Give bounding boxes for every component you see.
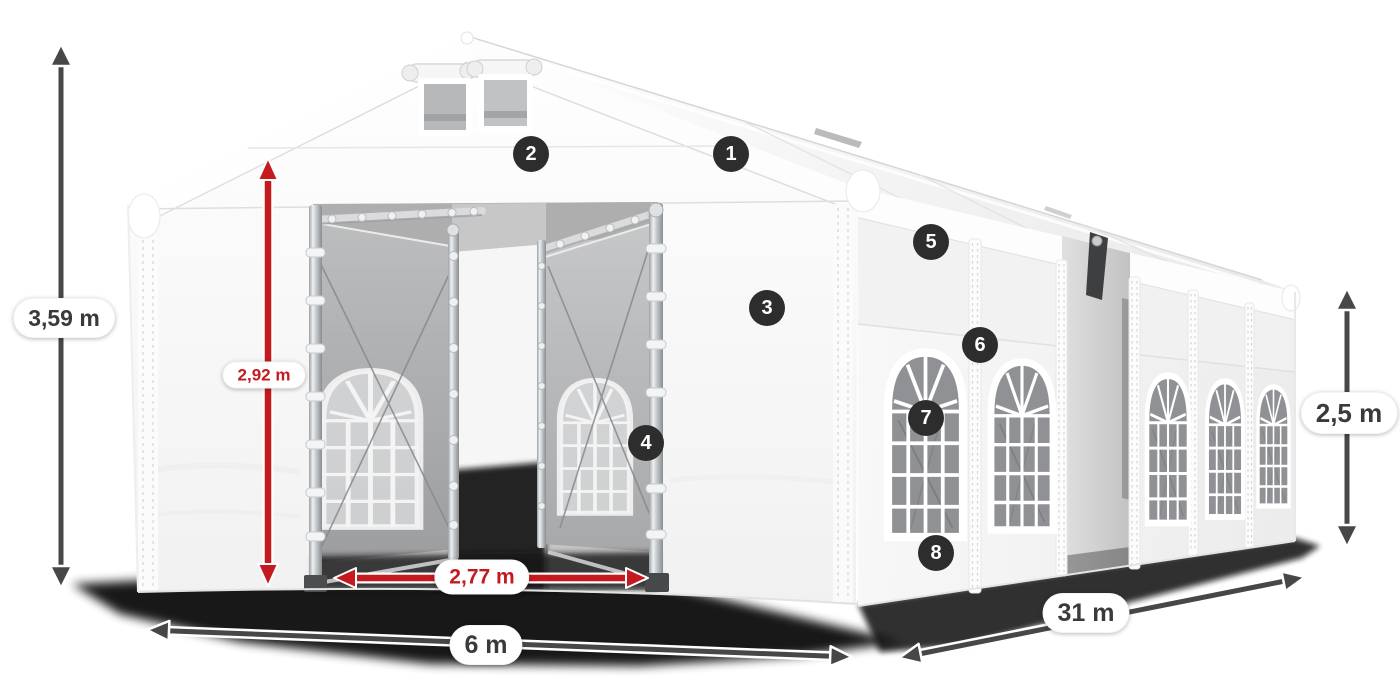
dimension-label-width: 6 m	[449, 625, 522, 665]
side-window	[1207, 381, 1243, 517]
dimension-label-side-height: 2,5 m	[1301, 392, 1398, 434]
curtain-window	[322, 371, 419, 527]
side-door-opening	[1062, 232, 1130, 576]
dimension-label-entrance-width: 2,77 m	[434, 560, 529, 595]
rear-corner-cap	[1282, 285, 1300, 311]
dimension-label-length: 31 m	[1043, 593, 1130, 633]
feature-marker-7: 7	[908, 400, 944, 436]
gable-vent-right	[467, 59, 542, 132]
eave-corner-cap-right	[846, 170, 880, 212]
apex-cap	[461, 32, 473, 44]
feature-marker-4: 4	[628, 425, 664, 461]
side-window	[1147, 376, 1189, 523]
side-window	[888, 353, 963, 537]
side-window	[991, 362, 1053, 530]
dimension-label-total-height: 3,59 m	[13, 298, 115, 338]
feature-marker-1: 1	[713, 136, 749, 172]
feature-marker-3: 3	[749, 290, 785, 326]
front-door-opening	[304, 202, 669, 592]
tent-illustration	[0, 0, 1400, 700]
feature-marker-6: 6	[962, 327, 998, 363]
tent-dimension-diagram: 1 2 3 4 5 6 7 8 3,59 m 2,92 m 2,77 m 6 m…	[0, 0, 1400, 700]
eave-corner-cap-left	[128, 194, 160, 238]
feature-marker-5: 5	[913, 224, 949, 260]
dimension-label-entrance-height: 2,92 m	[223, 362, 306, 389]
feature-marker-8: 8	[918, 535, 954, 571]
side-window	[1258, 387, 1289, 506]
feature-marker-2: 2	[513, 136, 549, 172]
